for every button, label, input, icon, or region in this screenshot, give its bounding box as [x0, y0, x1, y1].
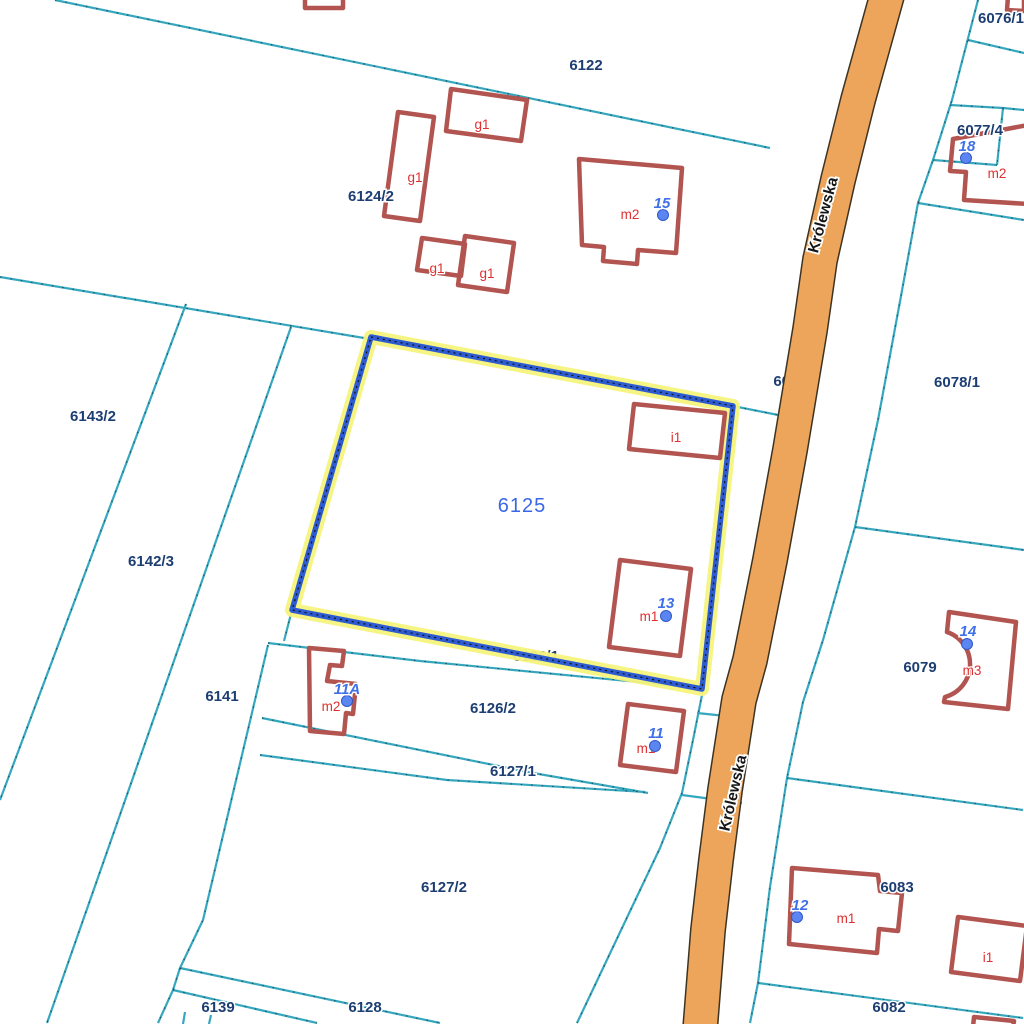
parcel-label-6126-2: 6126/2 [470, 700, 516, 717]
building-label-m1-house13: m1 [640, 609, 659, 624]
address-label-11a: 11A [334, 681, 360, 698]
building-label-i1-parcel6125: i1 [671, 430, 682, 445]
building-label-m2-house11a: m2 [322, 699, 341, 714]
building-fragment-bottom-right [973, 1017, 1014, 1024]
parcel-label-6141: 6141 [205, 688, 238, 705]
parcel-label-6139: 6139 [201, 999, 234, 1016]
parcel-label-6122: 6122 [569, 57, 602, 74]
parcel-label-6076-1: 6076/1 [978, 10, 1024, 27]
building-label-i1-bottom: i1 [983, 950, 994, 965]
map-canvas[interactable]: 6080 6126/1 6122 6124/2 6143/2 6142/3 [0, 0, 1024, 1024]
building-i1-bottom-right [951, 917, 1024, 981]
address-label-13: 13 [658, 595, 675, 612]
buildings [305, 0, 1024, 1024]
building-house-14 [944, 612, 1016, 709]
address-label-15: 15 [654, 195, 671, 212]
address-dot-11 [650, 741, 661, 752]
address-dot-14 [962, 639, 973, 650]
parcel-label-6143-2: 6143/2 [70, 408, 116, 425]
building-house-13 [609, 560, 691, 656]
parcel-label-6083: 6083 [880, 879, 913, 896]
address-dot-13 [661, 611, 672, 622]
address-label-18: 18 [959, 138, 976, 155]
building-label-m2-house18: m2 [988, 166, 1007, 181]
parcel-label-6078-1: 6078/1 [934, 374, 980, 391]
parcel-label-6082: 6082 [872, 999, 905, 1016]
parcel-label-6142-3: 6142/3 [128, 553, 174, 570]
address-label-14: 14 [960, 623, 977, 640]
address-label-11: 11 [648, 725, 664, 742]
building-label-m2-house15: m2 [621, 207, 640, 222]
building-label-g1-b: g1 [407, 170, 422, 185]
building-label-m1-house12: m1 [837, 911, 856, 926]
parcel-labels: 6122 6124/2 6143/2 6142/3 6141 6126/2 61… [70, 10, 1024, 1016]
parcel-label-6125-selected: 6125 [498, 495, 547, 517]
parcel-label-6077-4: 6077/4 [957, 122, 1004, 139]
building-label-g1-c: g1 [429, 261, 444, 276]
building-label-g1-d: g1 [479, 266, 494, 281]
parcel-label-6127-2: 6127/2 [421, 879, 467, 896]
parcel-label-6127-1: 6127/1 [490, 763, 536, 780]
building-g1-barn [446, 89, 527, 141]
parcel-label-6079: 6079 [903, 659, 936, 676]
building-label-m3-house14: m3 [963, 663, 982, 678]
building-label-g1-a: g1 [474, 117, 489, 132]
parcel-label-6128: 6128 [348, 999, 381, 1016]
parcel-label-6124-2: 6124/2 [348, 188, 394, 205]
address-label-12: 12 [792, 897, 809, 914]
building-fragment-top [305, 0, 343, 8]
